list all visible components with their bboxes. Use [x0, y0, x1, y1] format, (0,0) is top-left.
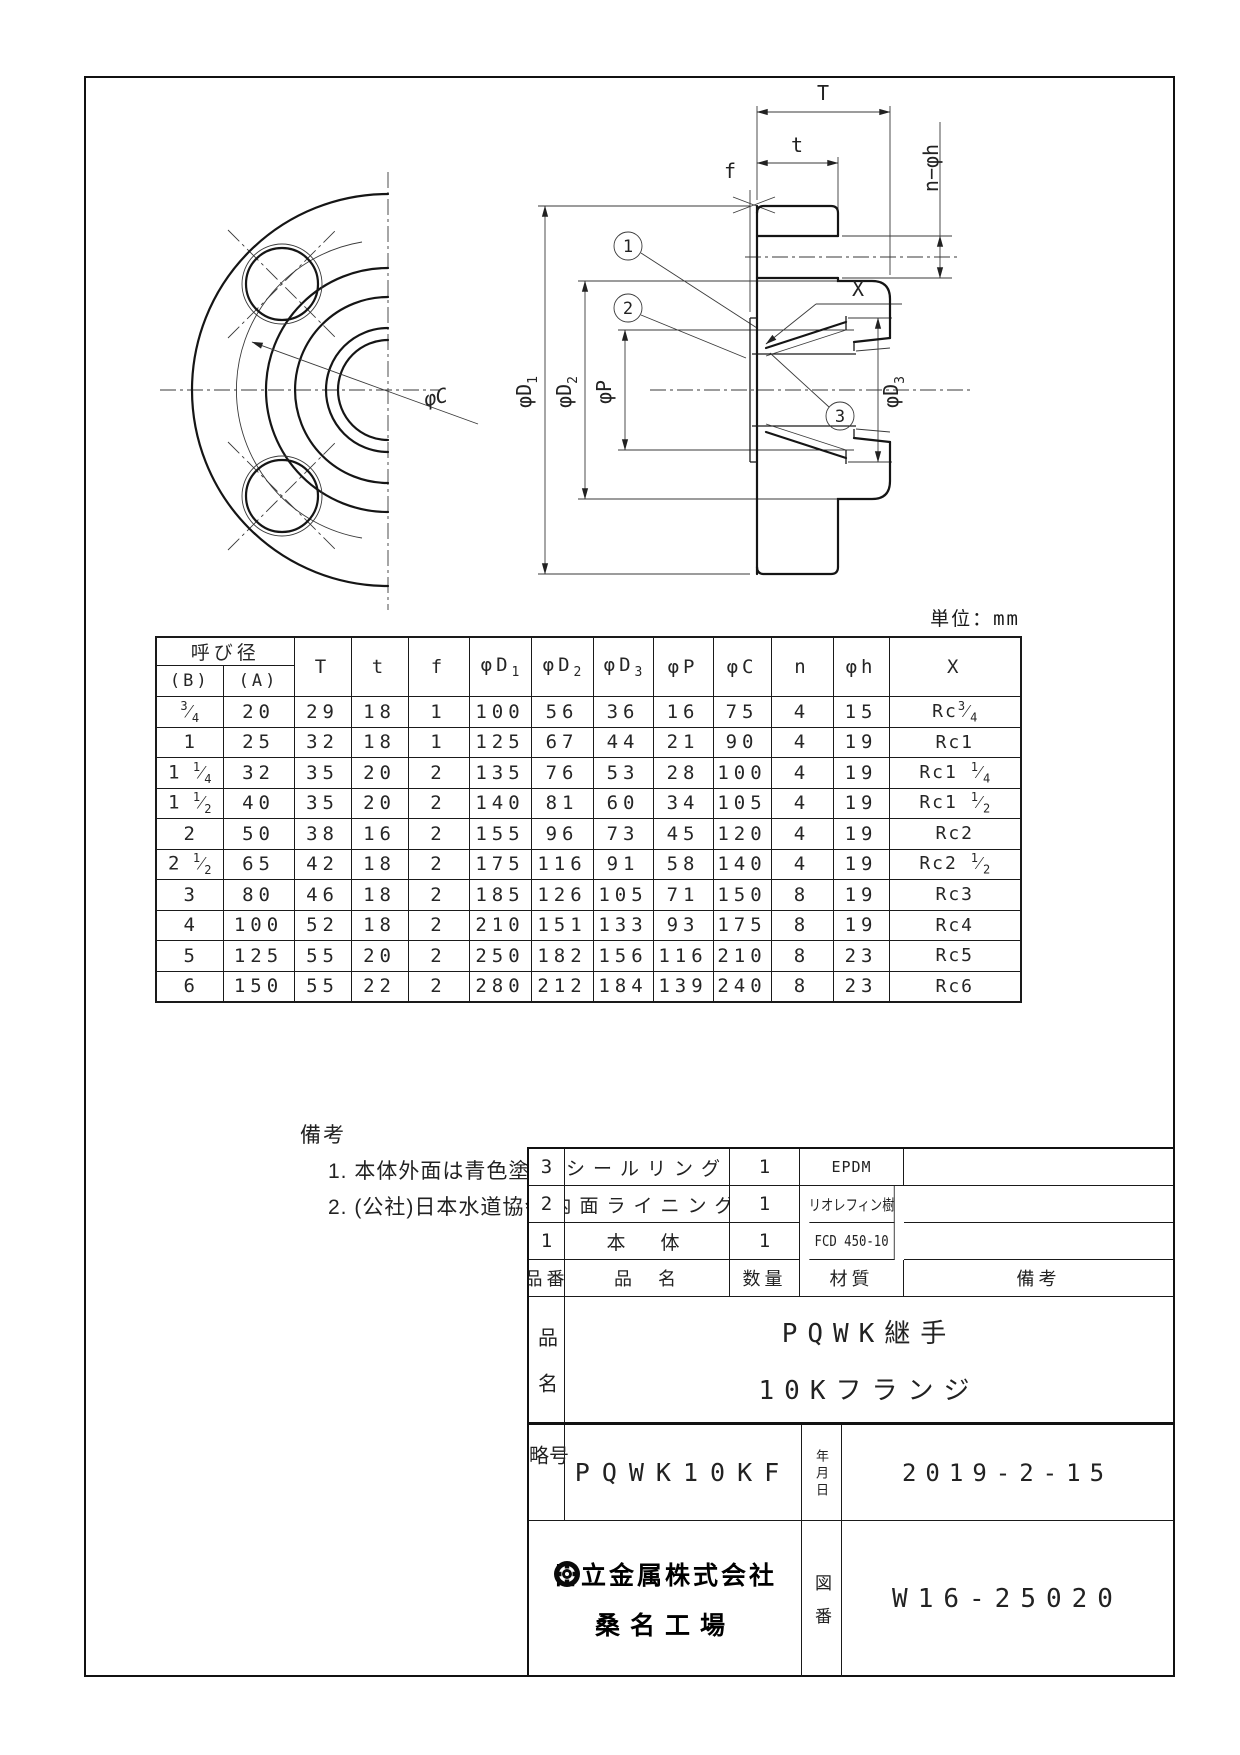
dim-cell: 20 — [351, 788, 408, 819]
dim-cell: 1 — [408, 697, 469, 728]
dim-label-f: f — [724, 159, 736, 183]
dim-cell: 55 — [294, 941, 351, 972]
part-no: 3 — [529, 1149, 565, 1186]
part-remark — [904, 1223, 1173, 1260]
dim-cell: 18 — [351, 880, 408, 911]
dim-cell: 28 — [653, 758, 713, 789]
dim-label-phi-D2: φD2 — [552, 376, 581, 408]
dimension-table: 呼び径 TtfφD1φD2φD3φPφCnφhX (B) (A) 3⁄42029… — [155, 636, 1022, 1003]
dim-cell: Rc1 — [889, 727, 1021, 758]
part-name: 本 体 — [565, 1223, 730, 1260]
svg-text:2: 2 — [623, 299, 633, 319]
dim-cell: 18 — [351, 727, 408, 758]
dim-cell: 71 — [653, 880, 713, 911]
dim-header-row-1: 呼び径 TtfφD1φD2φD3φPφCnφhX — [156, 637, 1021, 666]
dim-cell: Rc2 1⁄2 — [889, 849, 1021, 880]
dim-label-n-phi-h: n−φh — [919, 144, 943, 192]
dim-cell: 36 — [593, 697, 653, 728]
dim-cell: 40 — [223, 788, 294, 819]
drawing-no-value: W16-25020 — [842, 1521, 1173, 1677]
dim-cell: 240 — [713, 971, 771, 1002]
dim-cell: 60 — [593, 788, 653, 819]
dim-cell: 50 — [223, 819, 294, 850]
dim-cell: 2 — [408, 910, 469, 941]
company-name: 日立金属株式会社 — [553, 1556, 777, 1592]
dim-cell: 1 1⁄2 — [156, 788, 223, 819]
dim-cell: 5 — [156, 941, 223, 972]
dim-cell: 90 — [713, 727, 771, 758]
date-value: 2019-2-15 — [842, 1425, 1173, 1520]
dim-cell: Rc2 — [889, 819, 1021, 850]
company-logo-icon — [553, 1560, 581, 1588]
dim-row: 41005218221015113393175819Rc4 — [156, 910, 1021, 941]
product-name-label: 品名 — [537, 1301, 557, 1419]
dim-cell: Rc5 — [889, 941, 1021, 972]
dim-cell: 4 — [771, 819, 833, 850]
dim-col-header: φP — [653, 637, 713, 697]
dim-cell: 19 — [833, 819, 889, 850]
dim-cell: 210 — [713, 941, 771, 972]
dim-cell: 125 — [469, 727, 531, 758]
front-view-centerlines — [160, 172, 440, 610]
dim-cell: 100 — [223, 910, 294, 941]
dim-cell: 44 — [593, 727, 653, 758]
dim-cell: 34 — [653, 788, 713, 819]
dim-cell: 42 — [294, 849, 351, 880]
dim-col-header: φD3 — [593, 637, 653, 697]
dim-cell: 151 — [531, 910, 593, 941]
section-dimension-lines — [545, 112, 940, 574]
balloon-2: 2 — [614, 294, 642, 322]
dim-label-phi-D1: φD1 — [512, 376, 541, 408]
dim-cell: 23 — [833, 941, 889, 972]
dim-cell: 140 — [713, 849, 771, 880]
parts-rows: 3シールリング1EPDM2内面ライニング1ポリオレフィン樹脂1本 体1FCD 4… — [529, 1149, 1173, 1260]
part-remark — [904, 1186, 1173, 1223]
dim-cell: 35 — [294, 788, 351, 819]
dim-cell: 19 — [833, 727, 889, 758]
dim-cell: 91 — [593, 849, 653, 880]
dim-cell: 32 — [294, 727, 351, 758]
part-no: 1 — [529, 1223, 565, 1260]
dim-cell: Rc4 — [889, 910, 1021, 941]
dim-cell: 45 — [653, 819, 713, 850]
dim-cell: 19 — [833, 880, 889, 911]
dim-table-body: 3⁄4202918110056361675415Rc3⁄412532181125… — [156, 697, 1021, 1003]
dim-cell: 120 — [713, 819, 771, 850]
dim-cell: 280 — [469, 971, 531, 1002]
dim-cell: 52 — [294, 910, 351, 941]
part-qty: 1 — [730, 1223, 800, 1260]
dim-cell: 29 — [294, 697, 351, 728]
dim-cell: 16 — [653, 697, 713, 728]
dim-cell: 96 — [531, 819, 593, 850]
title-block: 3シールリング1EPDM2内面ライニング1ポリオレフィン樹脂1本 体1FCD 4… — [527, 1147, 1175, 1677]
dim-cell: 35 — [294, 758, 351, 789]
dim-row: 3804618218512610571150819Rc3 — [156, 880, 1021, 911]
dim-cell: 125 — [223, 941, 294, 972]
parts-header-row: 品番 品 名 数量 材質 備考 — [529, 1260, 1173, 1297]
part-remark — [904, 1149, 1173, 1186]
dim-cell: 20 — [351, 941, 408, 972]
dim-cell: 126 — [531, 880, 593, 911]
dim-cell: 8 — [771, 941, 833, 972]
dim-cell: 4 — [156, 910, 223, 941]
dim-col-header: φD1 — [469, 637, 531, 697]
dim-cell: 140 — [469, 788, 531, 819]
drawing-no-label-cell: 図番 — [802, 1521, 842, 1677]
dim-cell: 210 — [469, 910, 531, 941]
dim-cell: 75 — [713, 697, 771, 728]
dim-cell: 18 — [351, 910, 408, 941]
dim-col-header: n — [771, 637, 833, 697]
dim-cell: 23 — [833, 971, 889, 1002]
code-value: PQWK10KF — [565, 1425, 802, 1520]
dim-cell: Rc3 — [889, 880, 1021, 911]
dim-cell: 3⁄4 — [156, 697, 223, 728]
company-name-line: 日立金属株式会社 — [553, 1556, 777, 1592]
dim-cell: 2 — [156, 819, 223, 850]
code-label: 略号 — [527, 1425, 567, 1520]
part-qty: 1 — [730, 1149, 800, 1186]
dim-cell: 212 — [531, 971, 593, 1002]
part-qty: 1 — [730, 1186, 800, 1223]
dim-cell: 20 — [351, 758, 408, 789]
dim-cell: 2 — [408, 971, 469, 1002]
section-extension-lines — [538, 106, 952, 574]
dim-cell: 25 — [223, 727, 294, 758]
dim-row: 25038162155967345120419Rc2 — [156, 819, 1021, 850]
dim-cell: 80 — [223, 880, 294, 911]
dim-cell: 3 — [156, 880, 223, 911]
dim-cell: 150 — [223, 971, 294, 1002]
dim-cell: 1 — [156, 727, 223, 758]
dim-cell: 55 — [294, 971, 351, 1002]
dim-col-header: X — [889, 637, 1021, 697]
dim-cell: 46 — [294, 880, 351, 911]
dim-cell: 1 1⁄4 — [156, 758, 223, 789]
nominal-a-header: (A) — [223, 666, 294, 697]
dim-cell: 81 — [531, 788, 593, 819]
dim-cell: 133 — [593, 910, 653, 941]
dim-col-header: φC — [713, 637, 771, 697]
part-material: EPDM — [800, 1149, 904, 1186]
dim-cell: 139 — [653, 971, 713, 1002]
part-material: ポリオレフィン樹脂 — [809, 1186, 894, 1223]
dim-cell: 105 — [593, 880, 653, 911]
code-row: 略号 PQWK10KF 年月日 2019-2-15 — [529, 1422, 1173, 1520]
section-view-drawing: 1 2 3 T t f X n−φh φD1 φD2 φP φD3 — [500, 70, 1020, 650]
dim-cell: 65 — [223, 849, 294, 880]
product-name-label-cell: 品名 — [529, 1297, 565, 1422]
nominal-size-group-header: 呼び径 — [156, 637, 294, 666]
dim-row: 1253218112567442190419Rc1 — [156, 727, 1021, 758]
part-name: シールリング — [565, 1149, 730, 1186]
dim-cell: 4 — [771, 727, 833, 758]
dim-row: 615055222280212184139240823Rc6 — [156, 971, 1021, 1002]
dim-cell: 15 — [833, 697, 889, 728]
dim-cell: 185 — [469, 880, 531, 911]
dim-label-T: T — [817, 81, 829, 105]
part-name: 内面ライニング — [565, 1186, 730, 1223]
dim-label-t: t — [791, 133, 803, 157]
dim-cell: 58 — [653, 849, 713, 880]
unit-label: 単位：mm — [930, 604, 1020, 631]
dim-label-phi-P: φP — [592, 380, 616, 404]
dim-cell: 4 — [771, 758, 833, 789]
dim-cell: 22 — [351, 971, 408, 1002]
dim-cell: 135 — [469, 758, 531, 789]
dim-cell: 38 — [294, 819, 351, 850]
parts-header-qty: 数量 — [730, 1260, 800, 1297]
dim-cell: 16 — [351, 819, 408, 850]
dim-cell: 155 — [469, 819, 531, 850]
dim-cell: 105 — [713, 788, 771, 819]
dim-col-header: f — [408, 637, 469, 697]
dim-col-header: T — [294, 637, 351, 697]
dim-cell: 76 — [531, 758, 593, 789]
part-material: FCD 450-10 — [809, 1223, 894, 1260]
dim-cell: 2 — [408, 941, 469, 972]
dim-col-header: φD2 — [531, 637, 593, 697]
dim-cell: 18 — [351, 849, 408, 880]
dim-cell: 2 — [408, 788, 469, 819]
parts-header-material: 材質 — [800, 1260, 904, 1297]
drawing-sheet: φC — [0, 0, 1240, 1755]
dim-cell: 2 — [408, 849, 469, 880]
dim-cell: 18 — [351, 697, 408, 728]
company-cell: 日立金属株式会社 桑名工場 — [529, 1521, 802, 1677]
dim-col-header: φh — [833, 637, 889, 697]
dim-cell: 2 1⁄2 — [156, 849, 223, 880]
dim-cell: 156 — [593, 941, 653, 972]
dim-cell: 8 — [771, 910, 833, 941]
dim-cell: 182 — [531, 941, 593, 972]
dim-label-phi-D3: φD3 — [879, 376, 908, 408]
dim-row: 512555202250182156116210823Rc5 — [156, 941, 1021, 972]
dim-cell: 53 — [593, 758, 653, 789]
balloon-1: 1 — [614, 232, 642, 260]
svg-text:1: 1 — [623, 237, 633, 257]
dim-cell: 93 — [653, 910, 713, 941]
balloon-3: 3 — [826, 402, 854, 430]
dim-cell: 4 — [771, 788, 833, 819]
dim-cell: 116 — [531, 849, 593, 880]
drawing-no-label: 図番 — [813, 1558, 830, 1640]
dim-label-X: X — [852, 277, 864, 301]
company-factory: 桑名工場 — [595, 1606, 735, 1642]
dim-cell: 19 — [833, 910, 889, 941]
dim-cell: 175 — [469, 849, 531, 880]
part-no: 2 — [529, 1186, 565, 1223]
product-name-row: 品名 PQWK継手 10Kフランジ — [529, 1297, 1173, 1422]
company-row: 日立金属株式会社 桑名工場 図番 W16-25020 — [529, 1520, 1173, 1677]
dim-cell: 2 — [408, 758, 469, 789]
dim-cell: 67 — [531, 727, 593, 758]
dim-cell: 116 — [653, 941, 713, 972]
parts-header-remark: 備考 — [904, 1260, 1173, 1297]
dim-cell: 4 — [771, 697, 833, 728]
date-label: 年月日 — [815, 1445, 828, 1500]
phi-c-label: φC — [421, 383, 450, 411]
dim-cell: Rc1 1⁄2 — [889, 788, 1021, 819]
dim-cell: 1 — [408, 727, 469, 758]
dim-cell: 150 — [713, 880, 771, 911]
dim-cell: 8 — [771, 880, 833, 911]
parts-header-name: 品 名 — [565, 1260, 730, 1297]
dim-cell: 19 — [833, 788, 889, 819]
dim-cell: 100 — [469, 697, 531, 728]
dim-cell: Rc6 — [889, 971, 1021, 1002]
product-name-value: PQWK継手 10Kフランジ — [565, 1297, 1173, 1422]
dim-cell: 6 — [156, 971, 223, 1002]
dim-row: 2 1⁄265421821751169158140419Rc2 1⁄2 — [156, 849, 1021, 880]
dim-cell: 21 — [653, 727, 713, 758]
date-label-cell: 年月日 — [802, 1425, 842, 1520]
product-name-line-1: PQWK継手 — [782, 1313, 957, 1350]
dim-cell: Rc3⁄4 — [889, 697, 1021, 728]
dim-cell: 19 — [833, 758, 889, 789]
dim-row: 1 1⁄43235202135765328100419Rc1 1⁄4 — [156, 758, 1021, 789]
svg-text:3: 3 — [835, 407, 845, 427]
nominal-b-header: (B) — [156, 666, 223, 697]
dim-cell: 73 — [593, 819, 653, 850]
dim-cell: 20 — [223, 697, 294, 728]
product-name-line-2: 10Kフランジ — [759, 1370, 980, 1407]
parts-header-no: 品番 — [529, 1260, 565, 1297]
code-label-cell: 略号 — [529, 1425, 565, 1520]
dim-cell: 4 — [771, 849, 833, 880]
dim-cell: 19 — [833, 849, 889, 880]
dim-cell: 32 — [223, 758, 294, 789]
dim-cell: 100 — [713, 758, 771, 789]
dim-cell: 175 — [713, 910, 771, 941]
dim-cell: Rc1 1⁄4 — [889, 758, 1021, 789]
dim-row: 1 1⁄24035202140816034105419Rc1 1⁄2 — [156, 788, 1021, 819]
dim-cell: 8 — [771, 971, 833, 1002]
dim-cell: 2 — [408, 880, 469, 911]
dim-cell: 56 — [531, 697, 593, 728]
dim-cell: 2 — [408, 819, 469, 850]
dim-col-header: t — [351, 637, 408, 697]
dim-row: 3⁄4202918110056361675415Rc3⁄4 — [156, 697, 1021, 728]
dim-cell: 184 — [593, 971, 653, 1002]
front-view-drawing: φC — [150, 150, 510, 630]
dim-cell: 250 — [469, 941, 531, 972]
